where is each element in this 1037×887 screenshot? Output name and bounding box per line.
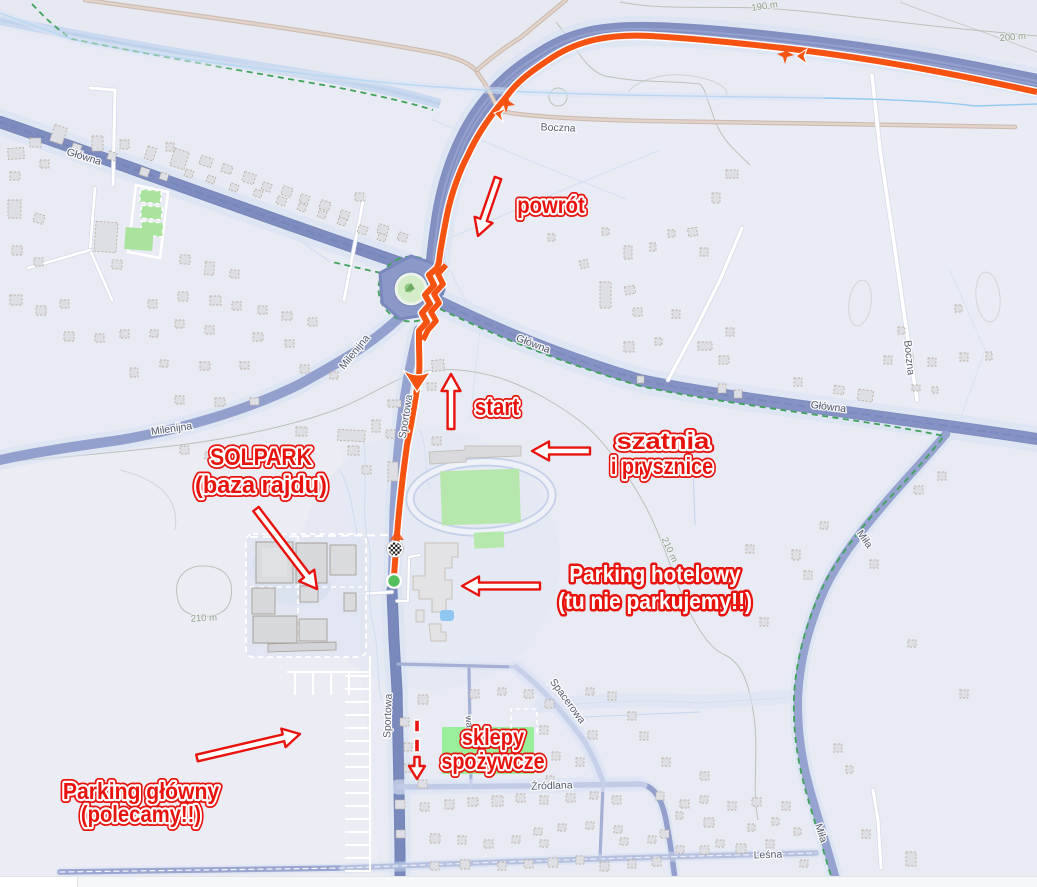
svg-text:start: start xyxy=(475,393,520,420)
svg-text:Parking hotelowy: Parking hotelowy xyxy=(569,561,741,587)
svg-text:200 m: 200 m xyxy=(999,31,1026,44)
svg-text:(tu nie parkujemy!!): (tu nie parkujemy!!) xyxy=(558,588,752,614)
svg-text:(baza rajdu): (baza rajdu) xyxy=(195,472,327,499)
svg-text:SOLPARK: SOLPARK xyxy=(210,444,312,471)
svg-text:210 m: 210 m xyxy=(190,612,217,624)
svg-text:(polecamy!!): (polecamy!!) xyxy=(81,801,201,828)
svg-text:Sportowa: Sportowa xyxy=(381,693,395,738)
svg-text:szatnia: szatnia xyxy=(617,429,711,454)
svg-text:spożywcze: spożywcze xyxy=(441,749,544,775)
svg-text:Boczna: Boczna xyxy=(540,121,576,134)
svg-text:powrót: powrót xyxy=(517,192,584,219)
svg-text:sklepy: sklepy xyxy=(462,724,524,751)
svg-text:i prysznice: i prysznice xyxy=(611,454,713,480)
svg-text:Źródlana: Źródlana xyxy=(531,778,573,792)
svg-text:Leśna: Leśna xyxy=(753,849,782,862)
